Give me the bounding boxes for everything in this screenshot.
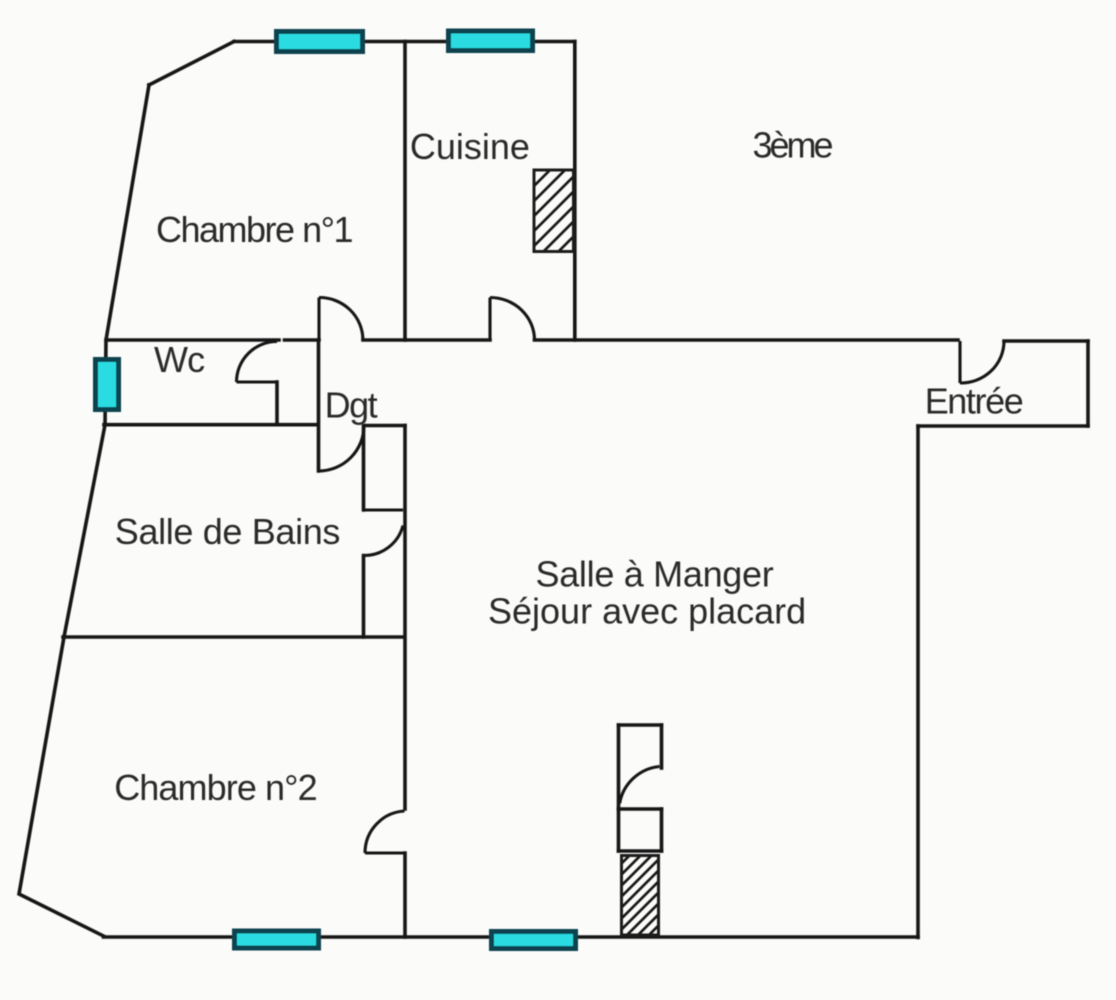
svg-text:Wc: Wc: [154, 339, 205, 380]
svg-text:Cuisine: Cuisine: [410, 126, 530, 167]
svg-text:Séjour avec placard: Séjour avec placard: [488, 590, 806, 631]
svg-text:Entrée: Entrée: [925, 381, 1023, 422]
svg-text:Salle à Manger: Salle à Manger: [536, 553, 774, 594]
svg-text:3ème: 3ème: [753, 125, 833, 166]
svg-text:Chambre n°1: Chambre n°1: [156, 209, 352, 250]
svg-text:Dgt: Dgt: [325, 384, 378, 425]
svg-text:Chambre n°2: Chambre n°2: [114, 767, 317, 808]
svg-text:Salle de Bains: Salle de Bains: [115, 511, 340, 552]
